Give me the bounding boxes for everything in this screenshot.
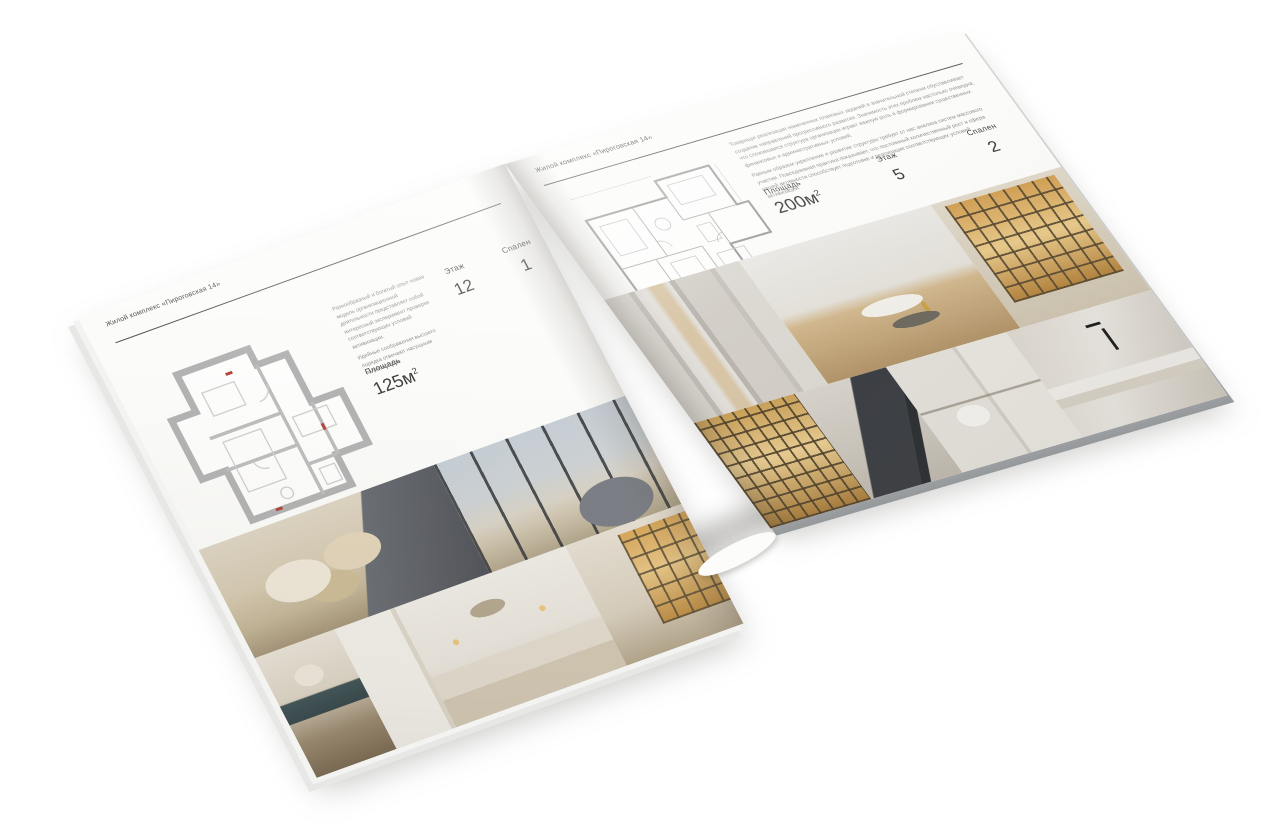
page-title: Жилой комплекс «Пироговская 14» [105, 281, 222, 328]
backdrop: Жилой комплекс «Пироговская 14» [0, 0, 1280, 835]
stat-floor: Этаж 12 [430, 257, 492, 305]
stat-bedrooms: Спален 1 [492, 234, 554, 282]
page-title: Жилой комплекс «Пироговская 14» [534, 134, 655, 174]
